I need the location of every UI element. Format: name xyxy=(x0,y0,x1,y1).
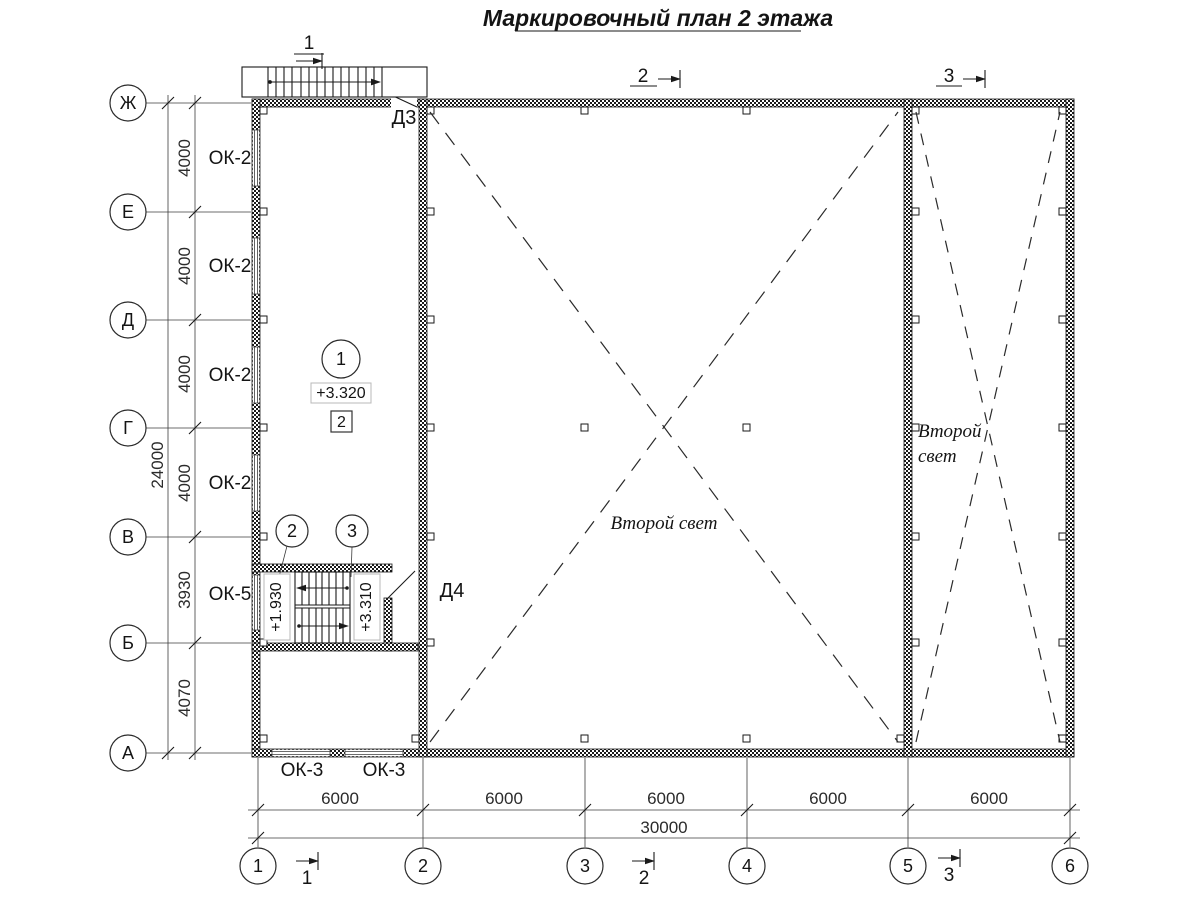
stair-elevation-top: +3.310 xyxy=(358,582,375,631)
axis-label: Е xyxy=(122,202,134,222)
dim-bottom-3: 6000 xyxy=(647,789,685,808)
dim-left-4: 4000 xyxy=(175,464,194,502)
window-label-ok3-1: ОК-3 xyxy=(281,760,324,781)
dim-left-total: 24000 xyxy=(148,441,167,488)
room-number: 1 xyxy=(336,349,346,369)
window-label-ok5: ОК-5 xyxy=(209,584,252,605)
window-ok2-4 xyxy=(252,455,260,511)
door-label-d4: Д4 xyxy=(440,580,465,602)
axis-col-2: 2 xyxy=(405,848,441,884)
window-label-ok2-3: ОК-2 xyxy=(209,365,252,386)
window-ok2-3 xyxy=(252,347,260,403)
second-light-main: Второй свет xyxy=(611,513,718,534)
stair-mark-3: 3 xyxy=(347,521,357,541)
row-axis-bubbles: Ж Е Д Г В Б А xyxy=(110,85,146,771)
axis-col-3: 3 xyxy=(567,848,603,884)
axis-row-g: Г xyxy=(110,410,146,446)
door-d4-symbol xyxy=(388,571,415,598)
window-ok3-2 xyxy=(345,749,403,757)
dim-bottom-total: 30000 xyxy=(640,818,687,837)
axis-label: Д xyxy=(122,310,134,330)
dim-left-2: 4000 xyxy=(175,247,194,285)
axis-label: Ж xyxy=(120,93,137,113)
window-label-ok2-2: ОК-2 xyxy=(209,256,252,277)
window-ok5 xyxy=(252,575,260,630)
axis-row-e: Е xyxy=(110,194,146,230)
internal-stair xyxy=(295,572,350,643)
dim-left-3: 4000 xyxy=(175,355,194,393)
external-stair xyxy=(242,67,427,97)
section-mark-1-top: 1 xyxy=(294,33,324,69)
axis-col-5: 5 xyxy=(890,848,926,884)
floor-plan-drawing: Маркировочный план 2 этажа xyxy=(0,0,1200,900)
void-cross-main-hall xyxy=(430,112,898,742)
axis-row-v: В xyxy=(110,519,146,555)
axis-label: А xyxy=(122,743,134,763)
axis-row-d: Д xyxy=(110,302,146,338)
floor-plan-page: Маркировочный план 2 этажа xyxy=(0,0,1200,900)
axis-label: 6 xyxy=(1065,856,1075,876)
section-mark-2-bottom: 2 xyxy=(632,852,655,889)
second-light-labels: Второй свет Второй свет xyxy=(611,421,983,534)
floor-type-mark: 2 xyxy=(337,414,346,431)
axis-row-b: Б xyxy=(110,625,146,661)
axis-col-1: 1 xyxy=(240,848,276,884)
axis-row-zh: Ж xyxy=(110,85,146,121)
window-ok2-1 xyxy=(252,130,260,186)
page-title: Маркировочный план 2 этажа xyxy=(483,5,833,31)
axis-label: 2 xyxy=(418,856,428,876)
section-mark-3-top: 3 xyxy=(936,66,986,88)
section-number: 1 xyxy=(304,33,315,54)
window-labels: ОК-2 ОК-2 ОК-2 ОК-2 ОК-5 ОК-3 ОК-3 xyxy=(209,148,406,781)
section-mark-2-top: 2 xyxy=(630,66,681,88)
axis-label: 5 xyxy=(903,856,913,876)
door-labels: Д3 Д4 xyxy=(392,107,465,602)
second-light-right-line2: свет xyxy=(918,446,957,467)
room-elevation: +3.320 xyxy=(316,385,365,402)
dim-bottom-4: 6000 xyxy=(809,789,847,808)
section-mark-1-bottom: 1 xyxy=(296,852,319,889)
column-axis-bubbles: 1 2 3 4 5 6 xyxy=(240,848,1088,884)
stair-mark-2: 2 xyxy=(287,521,297,541)
dim-bottom-5: 6000 xyxy=(970,789,1008,808)
window-label-ok2-1: ОК-2 xyxy=(209,148,252,169)
axis-row-a: А xyxy=(110,735,146,771)
section-number: 3 xyxy=(944,66,955,87)
left-dimension-lines: 4000 4000 4000 4000 3930 4070 24000 xyxy=(146,95,251,760)
section-arrow-icon xyxy=(963,70,986,88)
dim-bottom-1: 6000 xyxy=(321,789,359,808)
window-ok2-2 xyxy=(252,238,260,294)
section-arrow-icon xyxy=(658,70,681,88)
axis-label: В xyxy=(122,527,134,547)
axis-label: 4 xyxy=(742,856,752,876)
dim-left-5: 3930 xyxy=(175,571,194,609)
stair-elevation-mid: +1.930 xyxy=(268,582,285,631)
section-number: 3 xyxy=(944,865,955,886)
section-mark-3-bottom: 3 xyxy=(938,849,961,886)
room-mark-group: 1 +3.320 2 xyxy=(311,340,371,432)
axis-col-4: 4 xyxy=(729,848,765,884)
axis-label: 1 xyxy=(253,856,263,876)
window-ok3-1 xyxy=(272,749,330,757)
dim-left-1: 4000 xyxy=(175,139,194,177)
dim-bottom-2: 6000 xyxy=(485,789,523,808)
window-label-ok2-4: ОК-2 xyxy=(209,473,252,494)
axis-label: Г xyxy=(123,418,133,438)
window-label-ok3-2: ОК-3 xyxy=(363,760,406,781)
section-number: 2 xyxy=(638,66,649,87)
dim-left-6: 4070 xyxy=(175,679,194,717)
axis-col-6: 6 xyxy=(1052,848,1088,884)
drawing-title: Маркировочный план 2 этажа xyxy=(483,5,833,31)
axis-label: Б xyxy=(122,633,134,653)
section-number: 2 xyxy=(639,868,650,889)
axis-label: 3 xyxy=(580,856,590,876)
section-number: 1 xyxy=(302,868,313,889)
door-label-d3: Д3 xyxy=(392,107,417,129)
second-light-right-line1: Второй xyxy=(918,421,982,442)
